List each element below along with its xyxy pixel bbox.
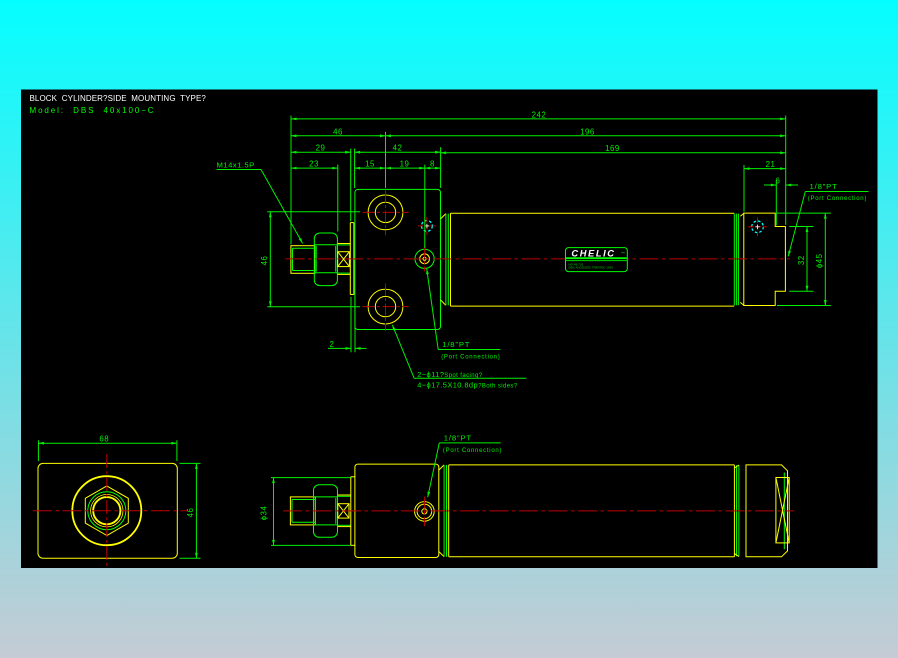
svg-text:ϕ34: ϕ34 — [259, 506, 268, 521]
svg-text:46: 46 — [186, 508, 195, 518]
svg-text:242: 242 — [532, 110, 547, 119]
svg-text:196: 196 — [580, 127, 595, 136]
svg-text:(Port Connection): (Port Connection) — [441, 355, 500, 361]
svg-text:CHELIC: CHELIC — [571, 248, 615, 258]
svg-text:1/8”PT: 1/8”PT — [444, 433, 472, 442]
svg-text:1/8”PT: 1/8”PT — [810, 182, 838, 191]
svg-text:DBS ANODIZED TREATED 1993: DBS ANODIZED TREATED 1993 — [569, 266, 614, 270]
svg-text:1/8”PT: 1/8”PT — [442, 340, 470, 349]
svg-text:(Port Connection): (Port Connection) — [443, 448, 502, 454]
svg-text:8: 8 — [430, 160, 435, 169]
svg-text:BLOCK CYLINDER?SIDE MOUNTING: BLOCK CYLINDER?SIDE MOUNTING TYPE? — [30, 94, 207, 103]
svg-text:32: 32 — [797, 255, 806, 265]
svg-text:29: 29 — [316, 144, 326, 153]
svg-text:ϕ45: ϕ45 — [815, 253, 824, 268]
svg-text:23: 23 — [309, 160, 319, 169]
svg-text:Model: DBS 40x100−C: Model: DBS 40x100−C — [30, 106, 156, 115]
svg-text:46: 46 — [260, 256, 269, 266]
svg-text:15: 15 — [365, 160, 375, 169]
svg-text:M14x1.5P: M14x1.5P — [217, 160, 255, 169]
svg-text:6: 6 — [776, 177, 781, 186]
svg-text:™: ™ — [621, 251, 625, 256]
svg-text:19: 19 — [400, 160, 410, 169]
svg-text:42: 42 — [393, 144, 403, 153]
svg-text:(Port Connection): (Port Connection) — [808, 196, 867, 202]
svg-text:169: 169 — [605, 144, 620, 153]
svg-text:46: 46 — [333, 127, 343, 136]
svg-text:21: 21 — [766, 160, 776, 169]
svg-text:2: 2 — [330, 340, 335, 349]
svg-text:68: 68 — [99, 435, 109, 444]
